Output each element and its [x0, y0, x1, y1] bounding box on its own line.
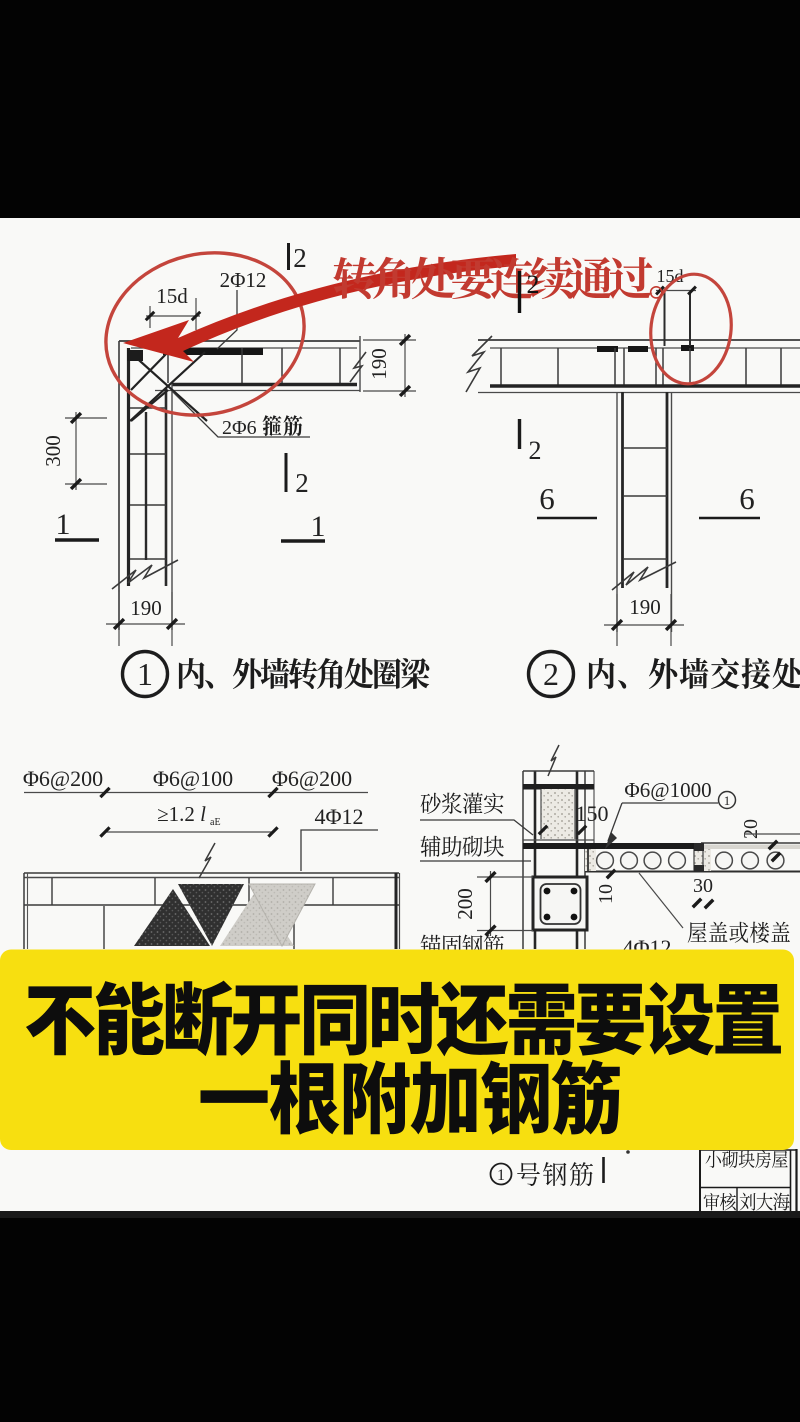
svg-text:Φ6@200: Φ6@200 [272, 766, 352, 791]
svg-text:Φ6@100: Φ6@100 [153, 766, 233, 791]
svg-text:1: 1 [56, 508, 71, 541]
svg-text:1: 1 [497, 1167, 505, 1184]
svg-text:2: 2 [527, 270, 540, 299]
svg-text:aE: aE [210, 817, 221, 828]
svg-text:l: l [200, 802, 206, 826]
svg-text:150: 150 [576, 801, 609, 826]
svg-text:30: 30 [693, 875, 713, 897]
svg-text:300: 300 [41, 435, 65, 467]
svg-text:20: 20 [740, 819, 762, 839]
svg-text:15d: 15d [156, 284, 188, 308]
svg-text:2: 2 [293, 243, 307, 273]
svg-text:190: 190 [629, 595, 661, 619]
svg-text:6: 6 [739, 481, 755, 516]
svg-text:200: 200 [453, 888, 477, 920]
svg-text:2Φ12: 2Φ12 [220, 268, 267, 292]
svg-text:190: 190 [367, 348, 391, 380]
svg-text:Φ6@1000: Φ6@1000 [624, 778, 711, 802]
svg-text:2Φ6: 2Φ6 [222, 417, 257, 439]
svg-text:6: 6 [539, 481, 555, 516]
svg-text:Φ6@200: Φ6@200 [23, 766, 103, 791]
svg-text:≥1.2: ≥1.2 [157, 802, 195, 826]
svg-text:10: 10 [595, 884, 617, 904]
svg-text:2: 2 [295, 468, 309, 498]
svg-text:190: 190 [130, 596, 162, 620]
svg-text:2: 2 [543, 656, 559, 692]
svg-text:1: 1 [137, 656, 153, 692]
svg-text:2: 2 [529, 436, 542, 465]
svg-text:4Φ12: 4Φ12 [314, 804, 363, 829]
svg-text:1: 1 [311, 510, 326, 543]
svg-text:1: 1 [724, 793, 731, 808]
